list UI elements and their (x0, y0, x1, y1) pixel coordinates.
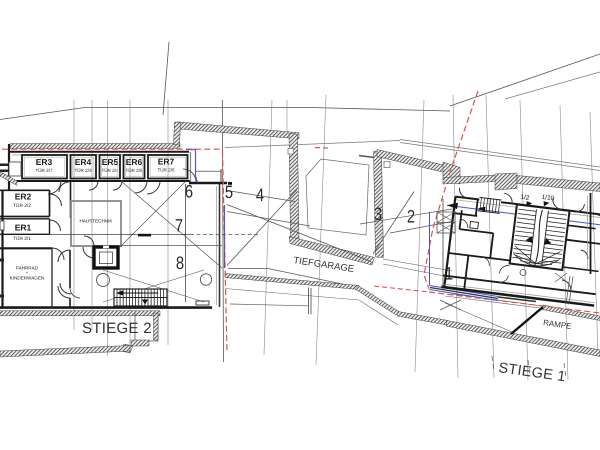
svg-text:TÜR 2/7: TÜR 2/7 (35, 168, 53, 173)
svg-text:KINDERWAGEN: KINDERWAGEN (10, 276, 44, 281)
svg-text:TÜR 2/6: TÜR 2/6 (157, 168, 175, 173)
svg-text:ER5: ER5 (102, 157, 119, 167)
svg-text:1/2: 1/2 (520, 194, 530, 202)
svg-text:8: 8 (176, 253, 184, 273)
svg-text:6: 6 (185, 182, 193, 202)
svg-text:ER1: ER1 (15, 223, 32, 233)
svg-text:ER3: ER3 (36, 157, 53, 167)
svg-text:5: 5 (225, 182, 233, 202)
svg-text:TÜR 2/3: TÜR 2/3 (74, 168, 92, 173)
svg-text:TÜR 2/5: TÜR 2/5 (125, 168, 143, 173)
svg-text:STIEGE 2: STIEGE 2 (82, 320, 152, 337)
svg-text:TÜR 2/4: TÜR 2/4 (101, 168, 119, 173)
svg-text:2: 2 (407, 207, 415, 227)
svg-text:HAUSTECHNIK: HAUSTECHNIK (80, 219, 114, 224)
svg-text:7: 7 (175, 216, 183, 236)
svg-text:ER4: ER4 (75, 157, 92, 167)
svg-text:4: 4 (256, 185, 264, 205)
svg-text:ER2: ER2 (15, 192, 32, 202)
svg-text:ER6: ER6 (126, 157, 143, 167)
svg-text:TÜR 2/2: TÜR 2/2 (13, 202, 31, 209)
svg-text:ER7: ER7 (158, 157, 175, 167)
svg-text:TÜR 2/1: TÜR 2/1 (13, 235, 31, 242)
svg-text:+: + (26, 270, 29, 275)
svg-text:3: 3 (374, 204, 382, 224)
